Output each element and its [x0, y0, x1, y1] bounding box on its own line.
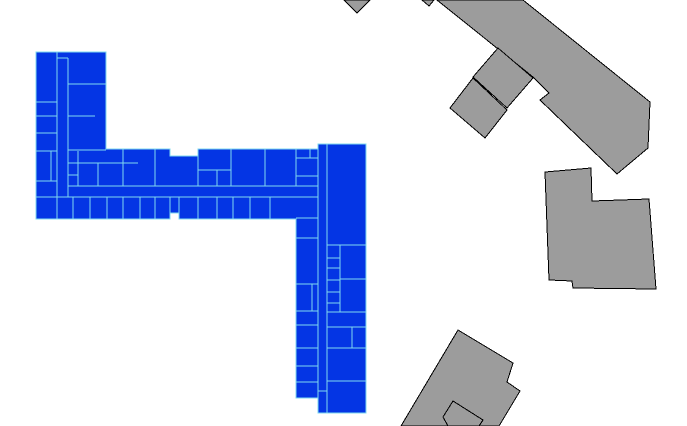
map-canvas[interactable]: [0, 0, 687, 426]
map-viewport[interactable]: [0, 0, 687, 426]
